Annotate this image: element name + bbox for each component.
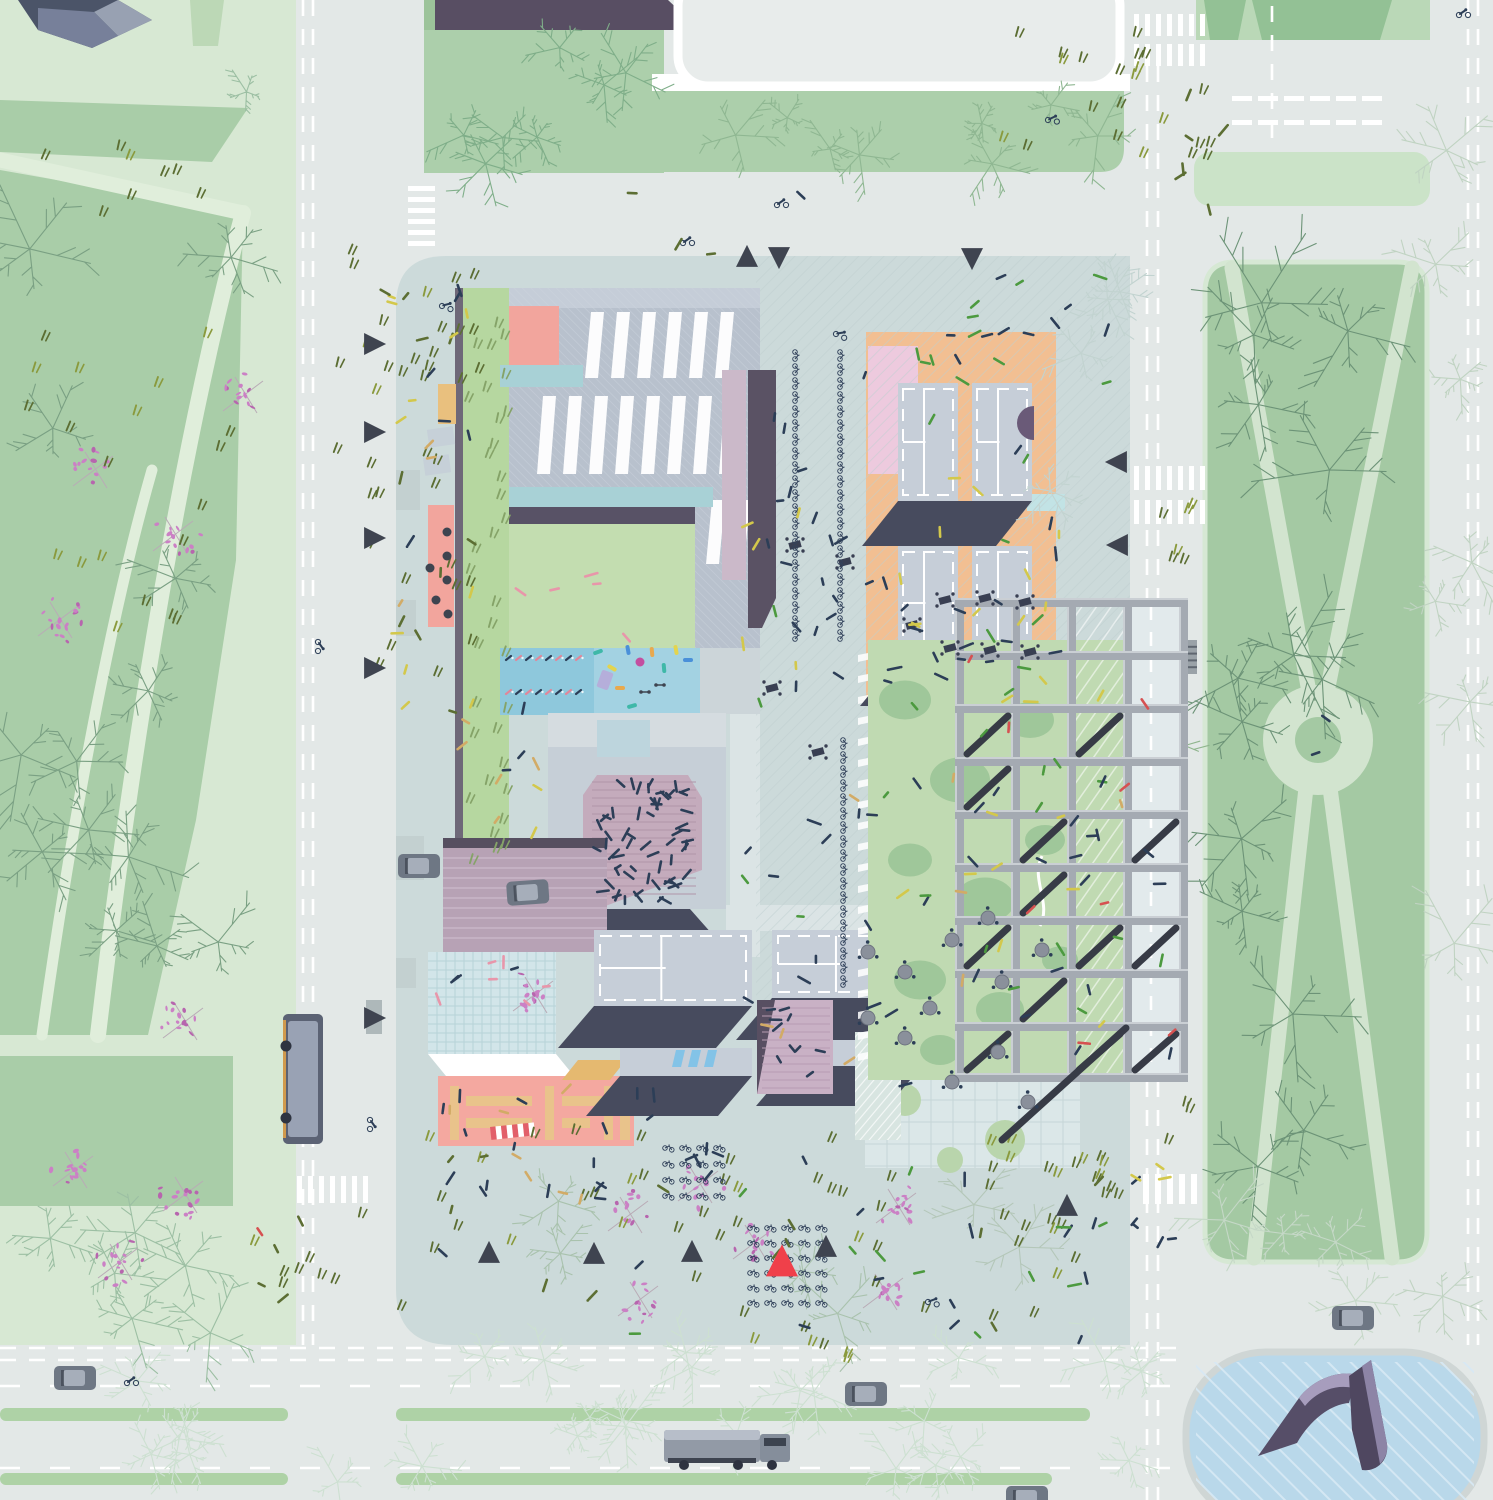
site-plan-svg (0, 0, 1493, 1500)
site-plan-illustration (0, 0, 1493, 1500)
car (1006, 1486, 1048, 1500)
car (398, 854, 440, 878)
car (506, 879, 550, 906)
car (54, 1366, 96, 1390)
car (845, 1382, 887, 1406)
car (1332, 1306, 1374, 1330)
bus (281, 1014, 324, 1144)
